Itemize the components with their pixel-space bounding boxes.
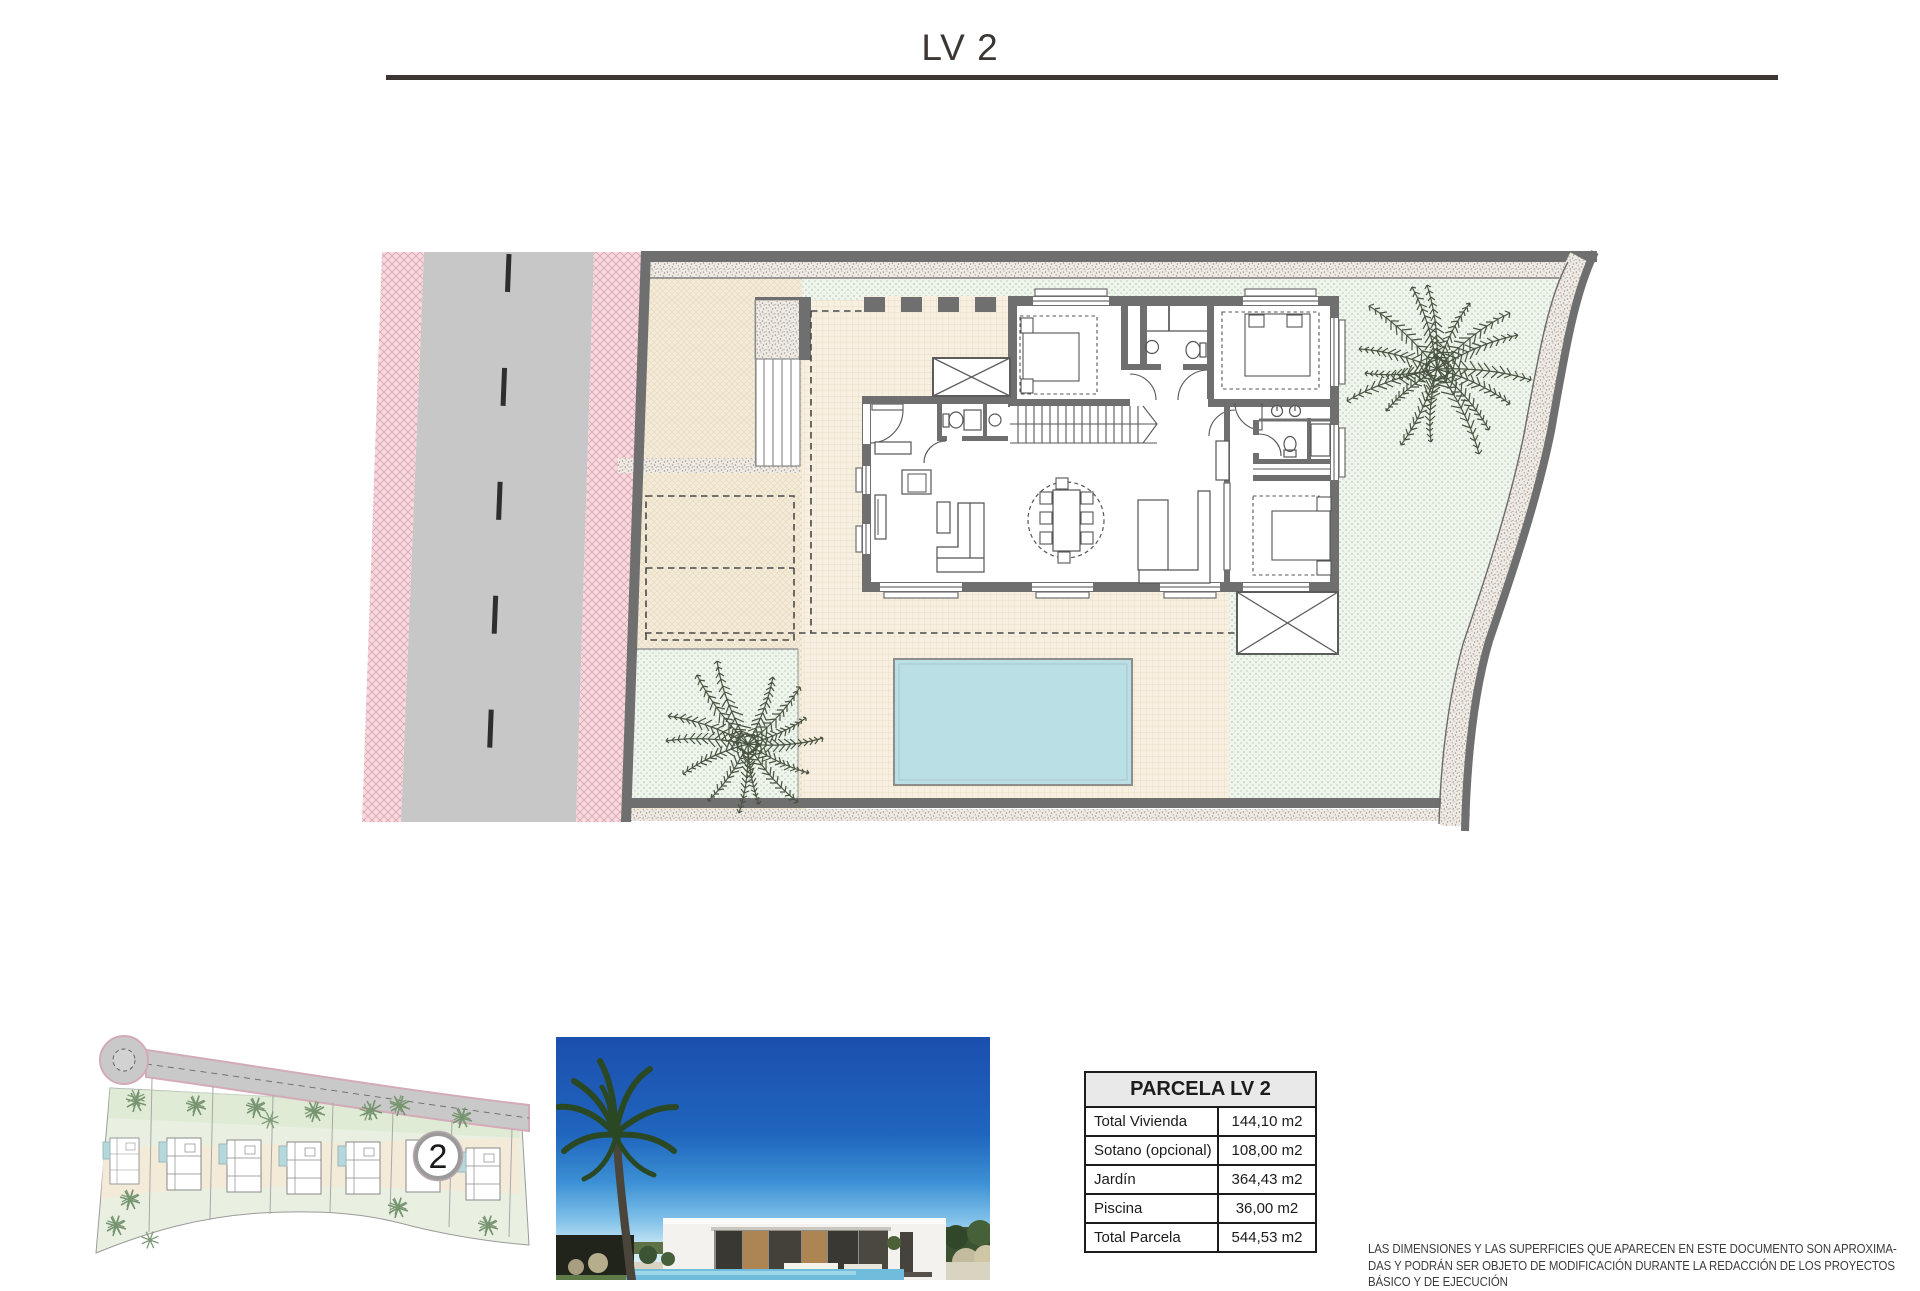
svg-text:2: 2 xyxy=(429,1138,448,1176)
